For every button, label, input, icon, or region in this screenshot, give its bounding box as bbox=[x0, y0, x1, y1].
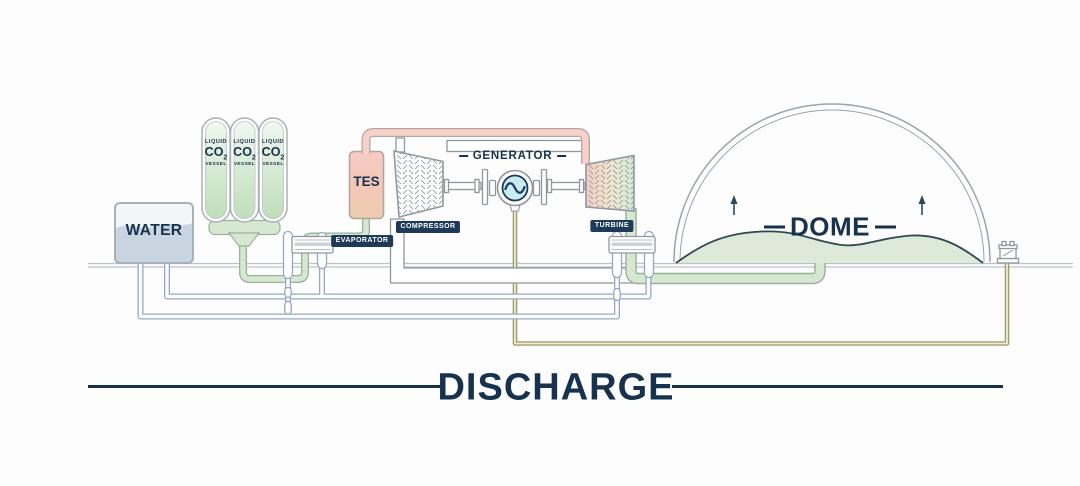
heading-dash bbox=[557, 155, 566, 157]
co2-vessel-2 bbox=[231, 118, 259, 222]
generator-heading-text: GENERATOR bbox=[473, 150, 553, 162]
compressor-badge: COMPRESSOR bbox=[396, 221, 460, 233]
diagram-canvas bbox=[0, 0, 1080, 486]
generator bbox=[498, 171, 533, 212]
co2-vessels bbox=[202, 118, 287, 222]
grid-transformer-icon bbox=[998, 242, 1019, 264]
page-title: DISCHARGE bbox=[437, 367, 674, 410]
tes-label: TES bbox=[353, 174, 379, 189]
turbine bbox=[586, 156, 634, 212]
title-rule-left bbox=[88, 385, 445, 388]
up-arrow-icon bbox=[731, 195, 738, 215]
title-rule-right bbox=[672, 385, 1003, 388]
compressor bbox=[394, 151, 443, 217]
vessel-line3: VESSEL bbox=[250, 162, 296, 169]
generator-heading: GENERATOR bbox=[459, 150, 567, 162]
up-arrow-icon bbox=[919, 195, 926, 215]
water-tank-label: WATER bbox=[126, 222, 183, 240]
heading-dash bbox=[875, 226, 896, 229]
discharge-diagram: WATER LIQUID CO2 VESSEL LIQUID CO2 VESSE… bbox=[0, 0, 1080, 486]
vessel-formula: CO2 bbox=[250, 146, 296, 162]
co2-vessel-1 bbox=[202, 118, 230, 222]
co2-vessel-3 bbox=[259, 118, 287, 222]
dome-heading-text: DOME bbox=[790, 212, 870, 243]
turbine-badge: TURBINE bbox=[590, 220, 633, 232]
co2-vessel-label: LIQUID CO2 VESSEL bbox=[250, 139, 296, 169]
evaporator-badge: EVAPORATOR bbox=[331, 235, 393, 247]
ground-line bbox=[88, 264, 1073, 268]
heading-dash bbox=[459, 155, 468, 157]
heading-dash bbox=[764, 226, 785, 229]
dome-heading: DOME bbox=[764, 212, 896, 243]
